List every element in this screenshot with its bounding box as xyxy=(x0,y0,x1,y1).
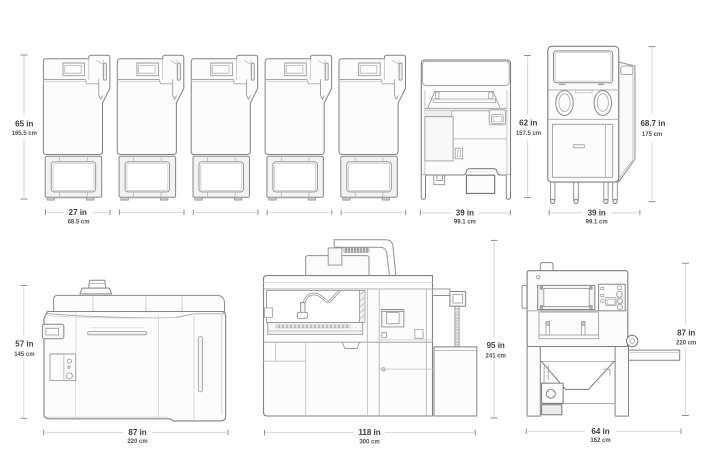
svg-text:87 in: 87 in xyxy=(128,428,146,437)
svg-text:62 in: 62 in xyxy=(519,119,537,128)
svg-text:220 cm: 220 cm xyxy=(127,439,147,445)
svg-text:95 in: 95 in xyxy=(487,341,505,350)
svg-text:157.5 cm: 157.5 cm xyxy=(516,131,541,137)
svg-text:99.1 cm: 99.1 cm xyxy=(586,220,608,226)
svg-text:175 cm: 175 cm xyxy=(642,132,662,138)
svg-text:39 in: 39 in xyxy=(588,208,606,217)
svg-text:39 in: 39 in xyxy=(456,208,474,217)
svg-text:68.5 cm: 68.5 cm xyxy=(68,219,90,225)
svg-text:65 in: 65 in xyxy=(15,120,33,129)
svg-text:99.1 cm: 99.1 cm xyxy=(454,220,476,226)
svg-text:87 in: 87 in xyxy=(677,328,695,337)
svg-text:300 cm: 300 cm xyxy=(359,439,379,445)
svg-text:64 in: 64 in xyxy=(591,427,609,436)
svg-text:162 cm: 162 cm xyxy=(590,438,610,444)
svg-text:27 in: 27 in xyxy=(69,208,87,217)
svg-text:220 cm: 220 cm xyxy=(676,341,696,347)
svg-text:57 in: 57 in xyxy=(15,339,33,348)
svg-text:68.7 in: 68.7 in xyxy=(640,119,665,128)
svg-text:118 in: 118 in xyxy=(358,428,380,437)
svg-text:241 cm: 241 cm xyxy=(486,353,506,359)
svg-text:165.5 cm: 165.5 cm xyxy=(12,131,37,137)
svg-text:145 cm: 145 cm xyxy=(14,352,34,358)
